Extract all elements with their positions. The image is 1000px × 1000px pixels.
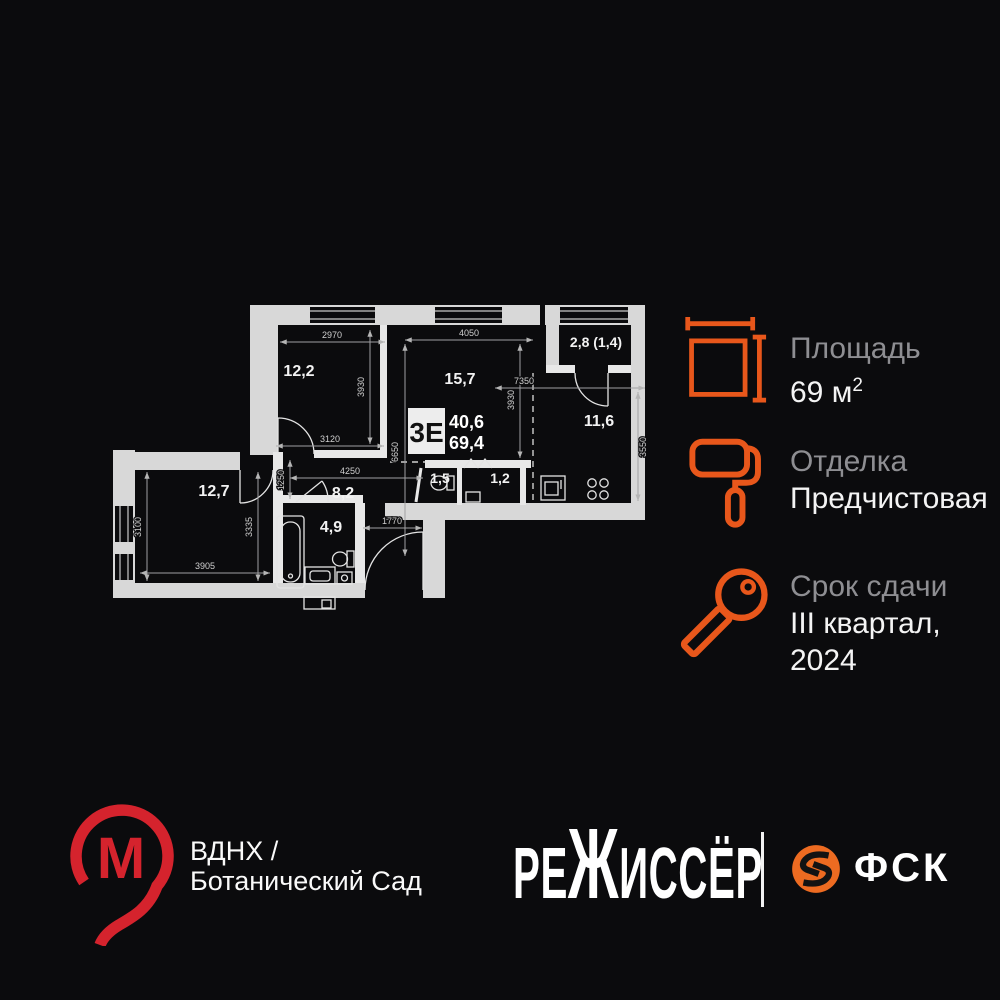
window-icon (115, 506, 133, 542)
dim-label: 4050 (459, 328, 479, 338)
station-line-1: ВДНХ / (190, 836, 422, 866)
dim-label: 3930 (506, 390, 516, 410)
room-area-label: 12,2 (283, 363, 314, 380)
fsk-logo-icon (789, 842, 843, 896)
total-area-value: 69,4 (449, 433, 484, 453)
spec-finish-value: Предчистовая (790, 480, 990, 517)
dim-label: 3335 (244, 517, 254, 537)
spec-deadline: Срок сдачи III квартал, 2024 (790, 568, 990, 679)
metro-station: ВДНХ / Ботанический Сад (190, 836, 422, 896)
room-area-label: 2,8 (1,4) (570, 334, 622, 350)
dim-label: 3100 (133, 517, 143, 537)
dim-label: 3120 (320, 434, 340, 444)
spec-area-value: 69 м2 (790, 367, 990, 411)
wc-diagonal-wall (416, 468, 421, 502)
station-line-2: Ботанический Сад (190, 866, 422, 896)
metro-letter: М (97, 826, 145, 891)
fsk-brand-name: ФСК (854, 846, 950, 891)
developer-logo: РЕЖИССЁР (513, 820, 763, 918)
dim-label: 6650 (390, 442, 400, 462)
stove-icon (588, 479, 608, 499)
floor-plan: 2970 3930 3120 4050 3930 6650 7350 3550 … (100, 280, 660, 610)
room-area-label: 8,2 (332, 485, 354, 502)
spec-deadline-value: III квартал, (790, 605, 990, 642)
room-area-label: 15,7 (444, 371, 475, 388)
kitchen-sink-icon (541, 476, 565, 500)
dim-label: 1770 (382, 516, 402, 526)
dim-label: 7350 (514, 376, 534, 386)
door-entry (365, 532, 423, 590)
dim-label: 2970 (322, 330, 342, 340)
washing-machine-icon (337, 572, 352, 584)
metro-logo: М (56, 796, 188, 946)
spec-area-label: Площадь (790, 330, 990, 367)
developer-logo-zh: Ж (568, 808, 619, 920)
room-area-label: 1,2 (490, 470, 510, 486)
sink-vanity-icon (305, 567, 335, 584)
paint-roller-icon (686, 426, 768, 534)
room-area-label: 11,6 (584, 413, 614, 430)
interior-walls (273, 325, 631, 583)
spec-deadline-label: Срок сдачи (790, 568, 990, 605)
floor-plan-svg: 2970 3930 3120 4050 3930 6650 7350 3550 … (100, 280, 660, 610)
spec-area: Площадь 69 м2 (790, 330, 990, 411)
room-area-label: 1,5 (430, 470, 450, 486)
dim-label: 4250 (340, 466, 360, 476)
living-area-value: 40,6 (449, 412, 484, 432)
spec-finish-label: Отделка (790, 443, 990, 480)
room-area-label: 12,7 (198, 483, 229, 500)
developer-logo-text: РЕ (513, 834, 568, 914)
area-icon (682, 311, 768, 409)
window-icon (560, 307, 628, 323)
shelf-icon (466, 492, 480, 502)
dimension-labels: 2970 3930 3120 4050 3930 6650 7350 3550 … (133, 328, 648, 571)
door-room-12-2 (278, 418, 314, 454)
spec-deadline-value2: 2024 (790, 642, 990, 679)
key-icon (672, 560, 778, 666)
spec-finish: Отделка Предчистовая (790, 443, 990, 517)
dim-label: 3905 (195, 561, 215, 571)
developer-logo-text: ИССЁР (619, 834, 763, 914)
entry-step (304, 597, 335, 609)
window-icon (310, 307, 375, 323)
dim-label: 3930 (356, 377, 366, 397)
toilet-icon (333, 551, 355, 567)
door-balcony (575, 373, 608, 406)
flyer: 2970 3930 3120 4050 3930 6650 7350 3550 … (0, 0, 1000, 1000)
dim-label: 3550 (638, 437, 648, 457)
door-room-12-7 (240, 470, 273, 503)
dim-label: 1250 (276, 470, 286, 490)
window-icon (115, 554, 133, 580)
window-icon (435, 307, 502, 323)
room-area-label: 4,9 (320, 519, 342, 536)
logo-divider (761, 832, 764, 907)
apartment-type: 3Е (409, 417, 443, 448)
apartment-type-badge: 3Е 40,6 69,4 (408, 408, 484, 454)
